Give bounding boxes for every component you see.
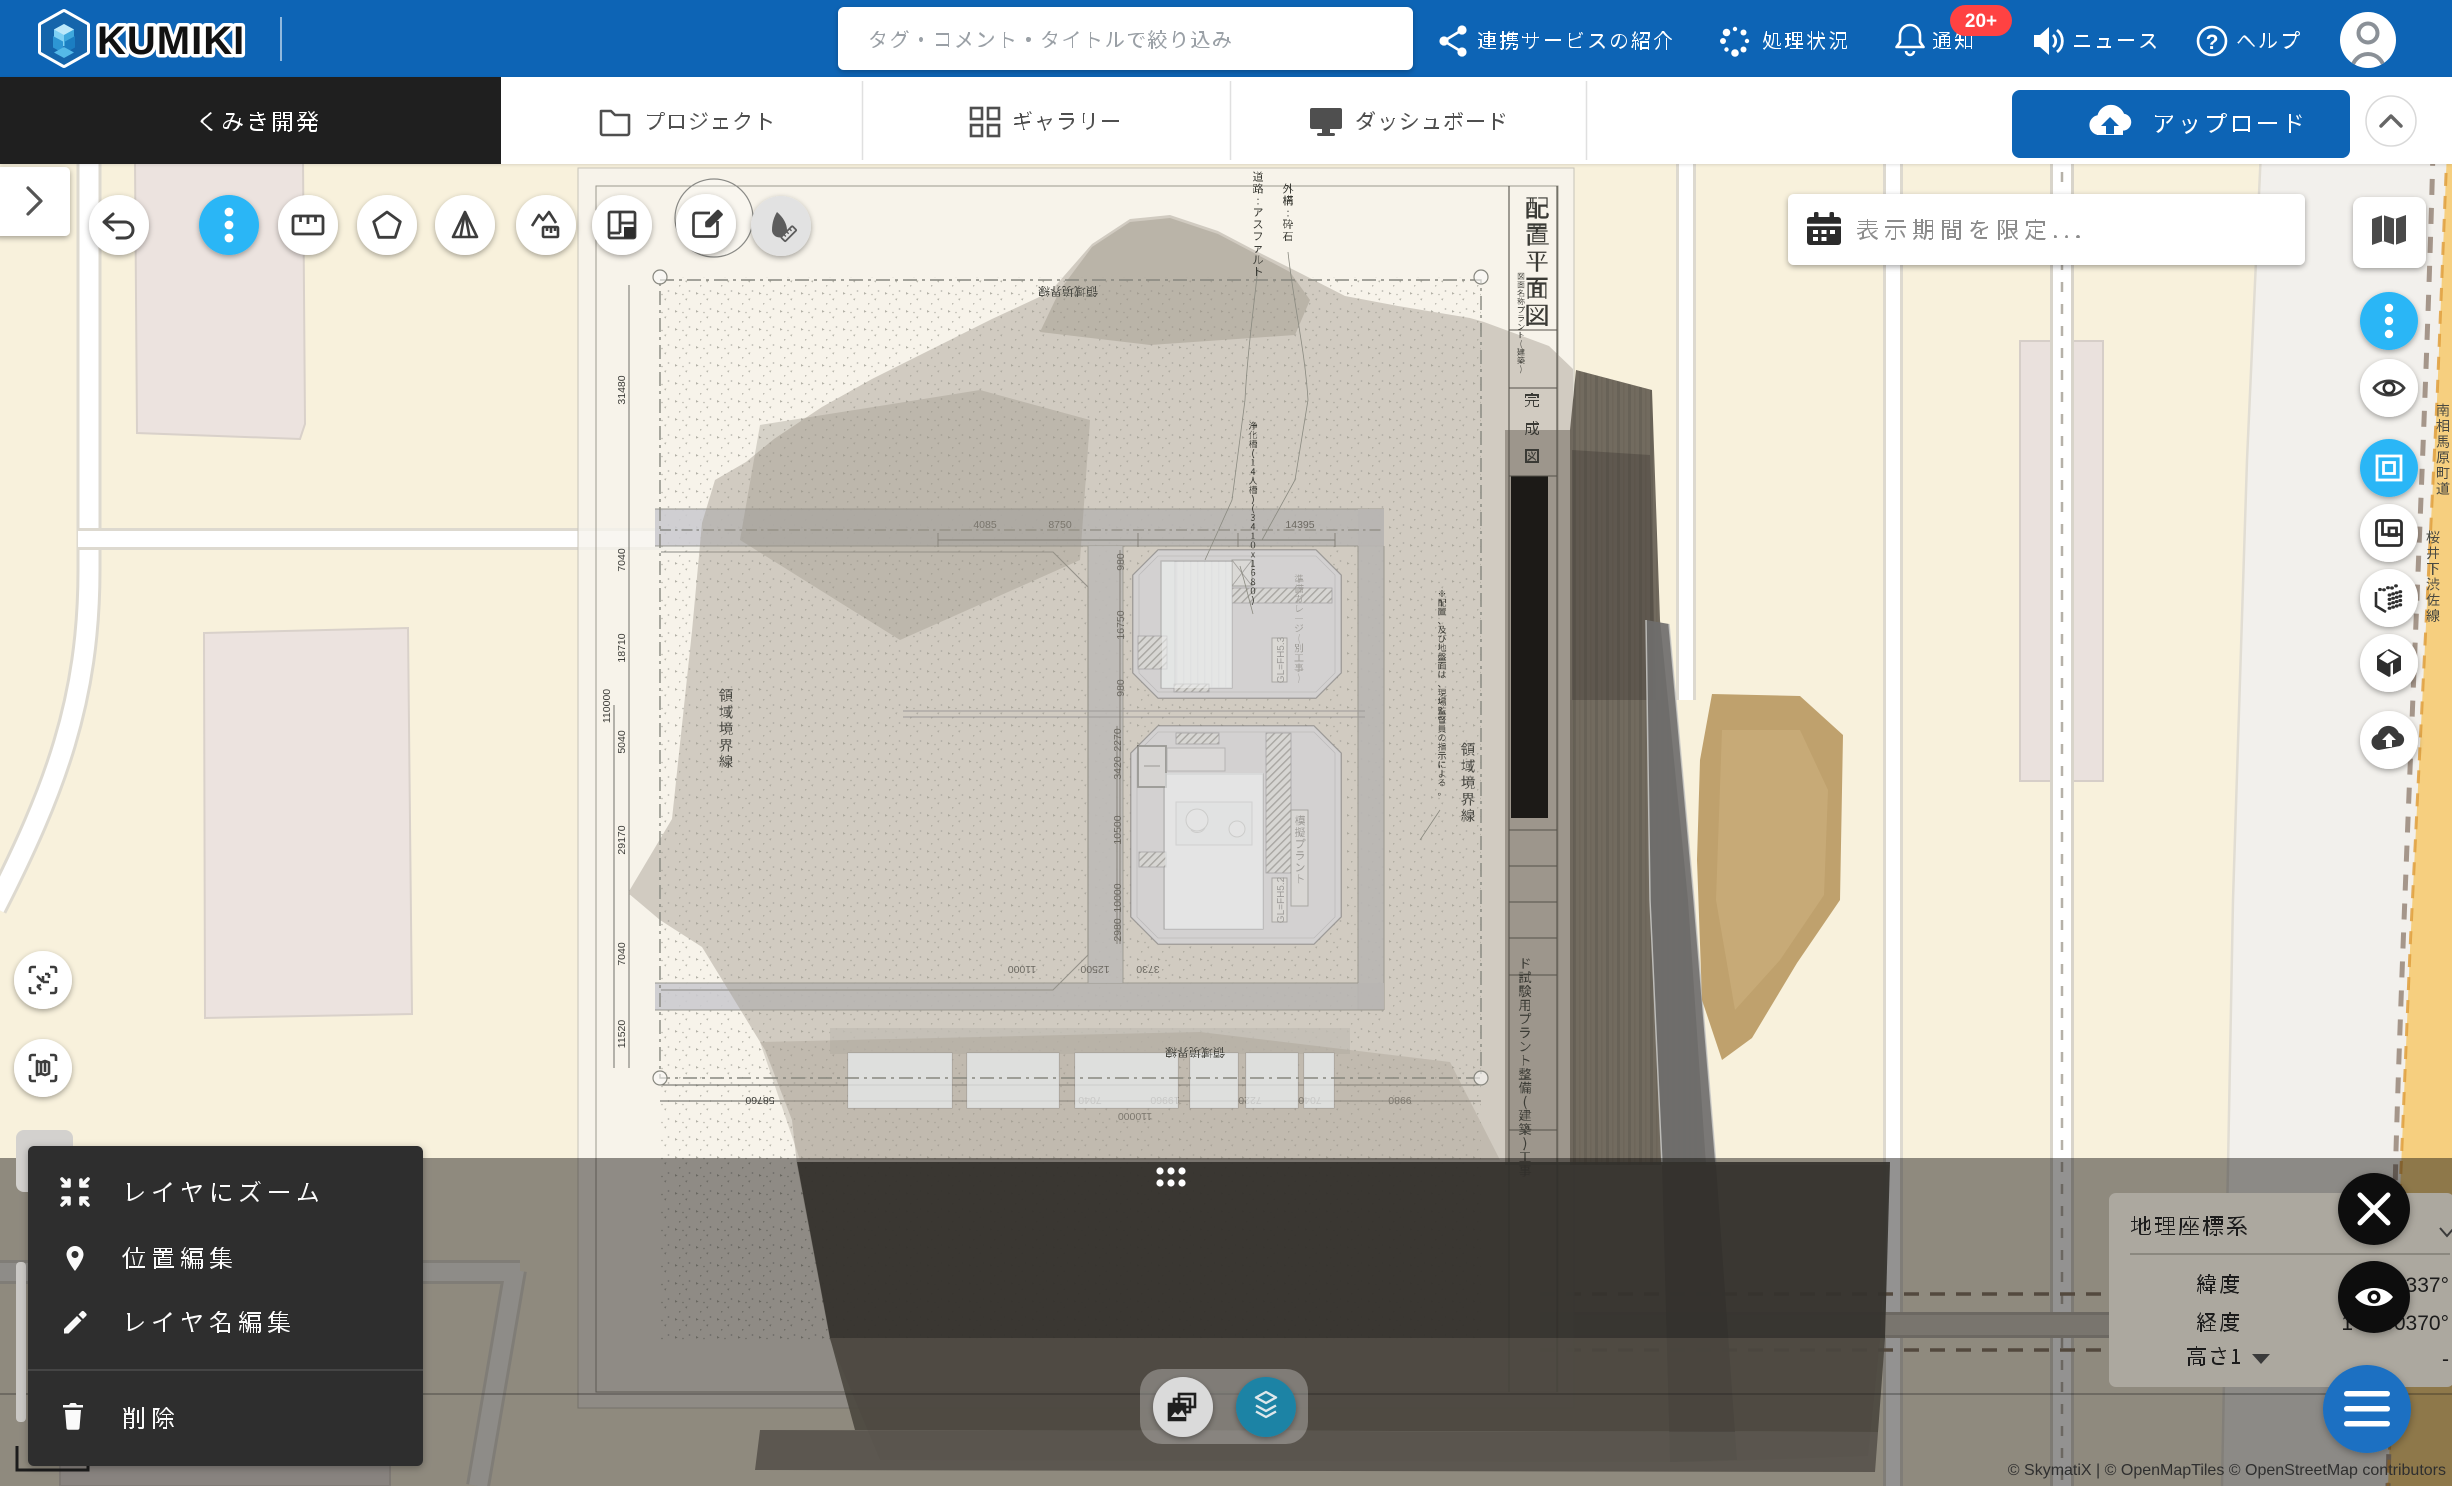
svg-text:?: ? <box>2206 31 2219 54</box>
svg-text:-: - <box>2442 1348 2449 1371</box>
svg-text:© SkymatiX | © OpenMapTiles ©: © SkymatiX | © OpenMapTiles © OpenStreet… <box>2008 1462 2446 1479</box>
svg-text:KUMIKI: KUMIKI <box>97 19 245 63</box>
svg-text:20+: 20+ <box>1965 11 1997 32</box>
